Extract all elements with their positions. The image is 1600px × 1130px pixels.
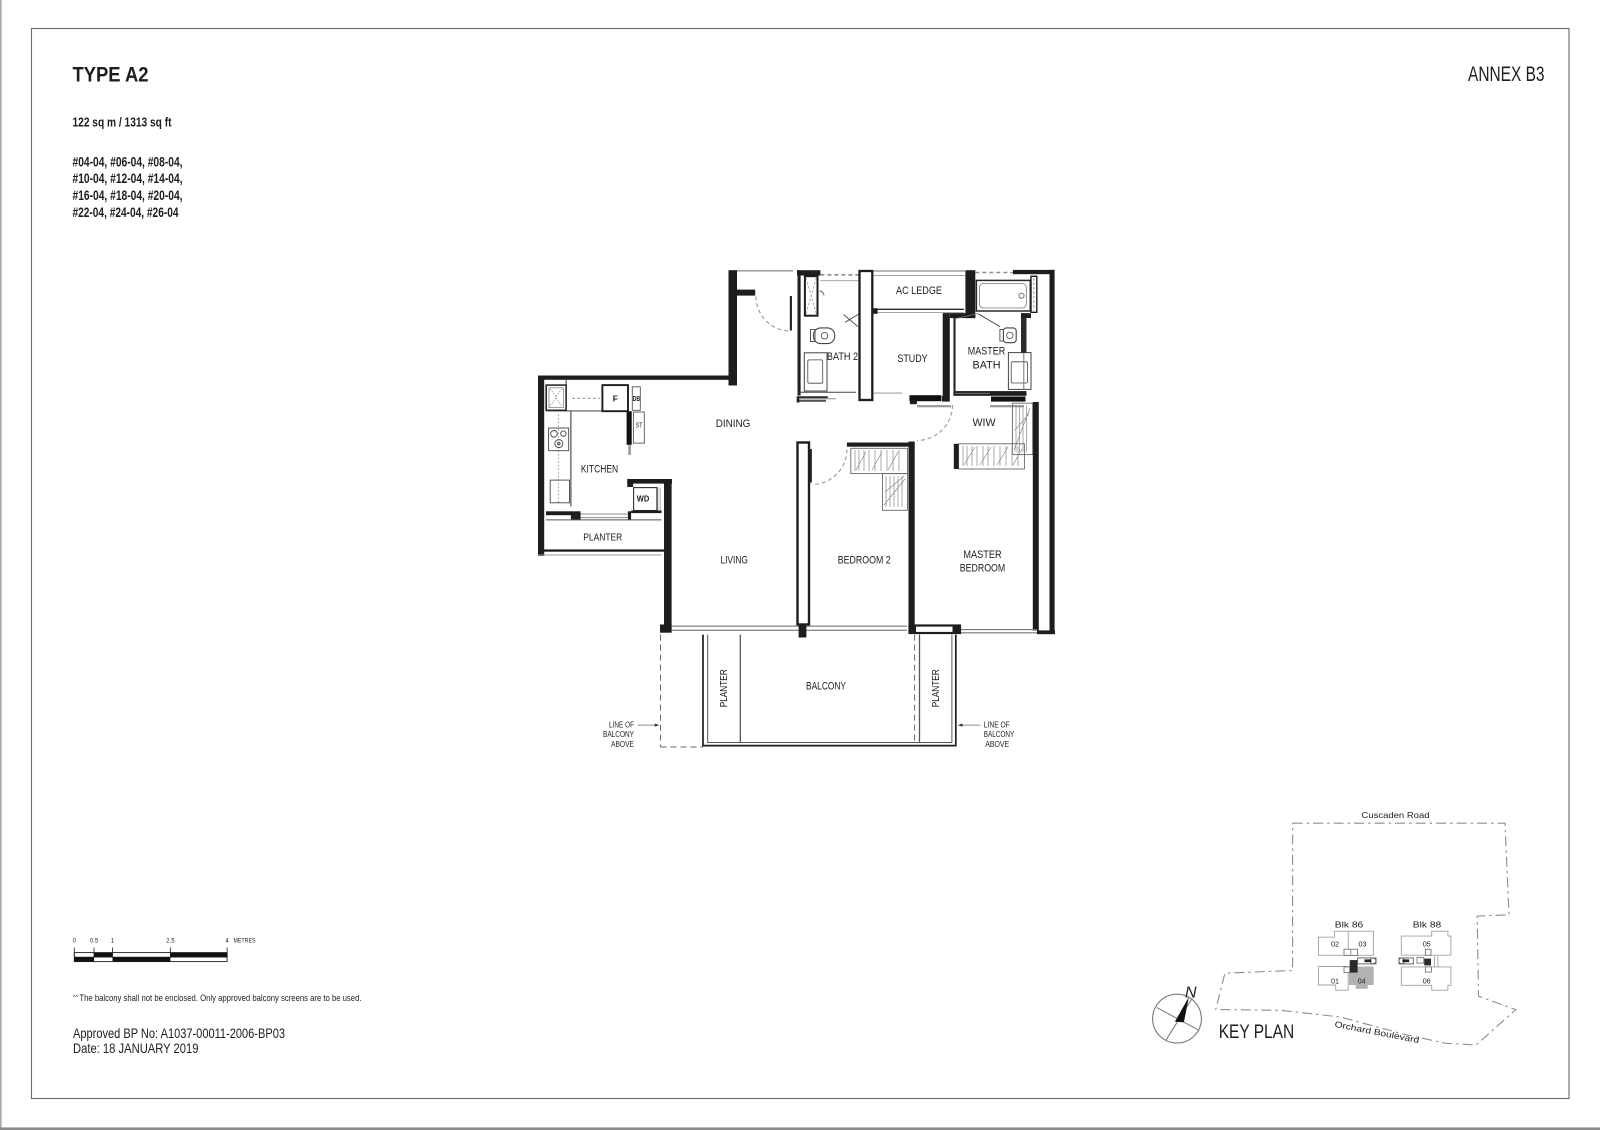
svg-text:KEY PLAN: KEY PLAN bbox=[1219, 1021, 1295, 1043]
svg-text:KITCHEN: KITCHEN bbox=[581, 463, 618, 475]
svg-text:02: 02 bbox=[1331, 940, 1339, 949]
svg-text:03: 03 bbox=[1359, 940, 1367, 949]
svg-text:PLANTER: PLANTER bbox=[718, 669, 730, 707]
svg-text:PLANTER: PLANTER bbox=[930, 669, 942, 707]
svg-text:05: 05 bbox=[1423, 940, 1431, 949]
svg-text:DB: DB bbox=[633, 396, 641, 403]
svg-text:01: 01 bbox=[1331, 977, 1339, 986]
svg-text:0.5: 0.5 bbox=[90, 939, 99, 945]
svg-text:METRES: METRES bbox=[234, 939, 256, 945]
svg-text:ANNEX B3: ANNEX B3 bbox=[1468, 62, 1545, 86]
svg-text:DINING: DINING bbox=[716, 418, 751, 430]
svg-text:Cuscaden Road: Cuscaden Road bbox=[1362, 810, 1430, 820]
svg-text:BEDROOM: BEDROOM bbox=[960, 563, 1006, 575]
svg-text:ST: ST bbox=[636, 423, 644, 430]
svg-text:AC LEDGE: AC LEDGE bbox=[896, 285, 942, 297]
svg-text:WIW: WIW bbox=[973, 417, 997, 429]
svg-text:WD: WD bbox=[637, 495, 650, 504]
svg-text:#16-04, #18-04, #20-04,: #16-04, #18-04, #20-04, bbox=[73, 188, 183, 203]
svg-text:Blk 88: Blk 88 bbox=[1413, 920, 1442, 929]
svg-text:BEDROOM 2: BEDROOM 2 bbox=[838, 555, 891, 567]
svg-text:LINE OF: LINE OF bbox=[609, 721, 634, 730]
svg-text:LINE OF: LINE OF bbox=[984, 721, 1010, 730]
svg-text:Date: 18 JANUARY 2019: Date: 18 JANUARY 2019 bbox=[73, 1040, 199, 1056]
svg-text:#22-04, #24-04, #26-04: #22-04, #24-04, #26-04 bbox=[73, 205, 179, 220]
svg-text:MASTER: MASTER bbox=[963, 549, 1001, 561]
svg-text:Blk 86: Blk 86 bbox=[1335, 920, 1364, 929]
svg-text:BALCONY: BALCONY bbox=[603, 730, 634, 739]
svg-text:Approved BP No: A1037-00011-20: Approved BP No: A1037-00011-2006-BP03 bbox=[73, 1025, 285, 1041]
svg-text:BATH 2: BATH 2 bbox=[827, 351, 858, 363]
svg-text:06: 06 bbox=[1423, 977, 1431, 986]
svg-text:122 sq m / 1313 sq ft: 122 sq m / 1313 sq ft bbox=[73, 115, 173, 130]
svg-text:STUDY: STUDY bbox=[897, 353, 928, 365]
svg-text:TYPE A2: TYPE A2 bbox=[73, 63, 149, 87]
svg-text:#04-04, #06-04, #08-04,: #04-04, #06-04, #08-04, bbox=[73, 154, 183, 169]
svg-text:F: F bbox=[613, 394, 618, 403]
svg-text:BALCONY: BALCONY bbox=[984, 730, 1015, 739]
svg-text:04: 04 bbox=[1358, 977, 1366, 986]
svg-text:LIVING: LIVING bbox=[720, 555, 748, 567]
svg-text:BATH: BATH bbox=[973, 359, 1001, 371]
svg-text:ABOVE: ABOVE bbox=[985, 740, 1009, 749]
svg-text:#10-04, #12-04, #14-04,: #10-04, #12-04, #14-04, bbox=[73, 171, 183, 186]
svg-text:ABOVE: ABOVE bbox=[611, 740, 634, 749]
svg-text:2.5: 2.5 bbox=[166, 939, 175, 945]
svg-text:N: N bbox=[1185, 985, 1197, 1002]
svg-text:MASTER: MASTER bbox=[968, 345, 1005, 357]
svg-text:BALCONY: BALCONY bbox=[806, 680, 847, 692]
svg-text:^^ The balcony shall not be en: ^^ The balcony shall not be enclosed. On… bbox=[73, 993, 362, 1004]
svg-text:PLANTER: PLANTER bbox=[583, 532, 622, 544]
